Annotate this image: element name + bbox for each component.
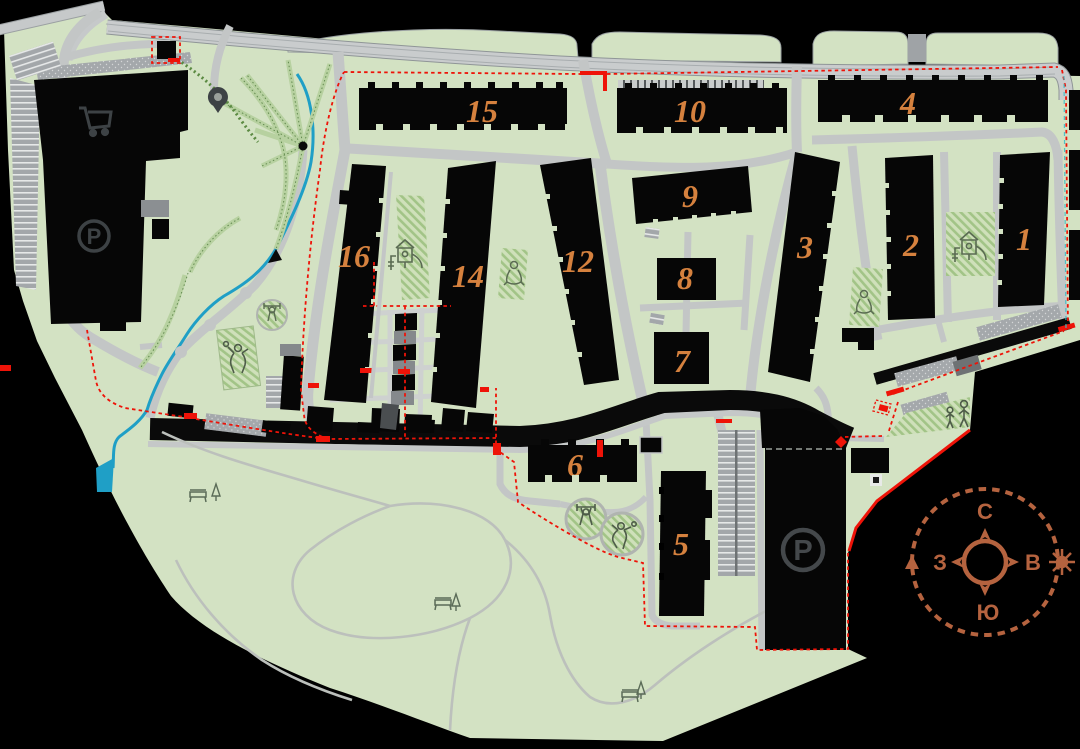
svg-text:15: 15 <box>466 93 498 129</box>
svg-text:В: В <box>1025 550 1041 575</box>
svg-text:8: 8 <box>677 260 693 296</box>
svg-text:10: 10 <box>674 93 706 129</box>
svg-text:16: 16 <box>338 238 370 274</box>
svg-text:9: 9 <box>682 178 698 214</box>
svg-text:З: З <box>933 550 947 575</box>
svg-text:2: 2 <box>902 227 919 263</box>
svg-text:С: С <box>977 499 993 524</box>
svg-text:3: 3 <box>796 229 813 265</box>
svg-text:7: 7 <box>674 343 692 379</box>
svg-text:P: P <box>793 535 812 567</box>
svg-text:P: P <box>87 224 102 249</box>
svg-text:1: 1 <box>1016 221 1032 257</box>
svg-text:5: 5 <box>673 526 689 562</box>
svg-text:14: 14 <box>452 258 484 294</box>
svg-text:Ю: Ю <box>977 600 1000 625</box>
svg-text:12: 12 <box>562 243 594 279</box>
